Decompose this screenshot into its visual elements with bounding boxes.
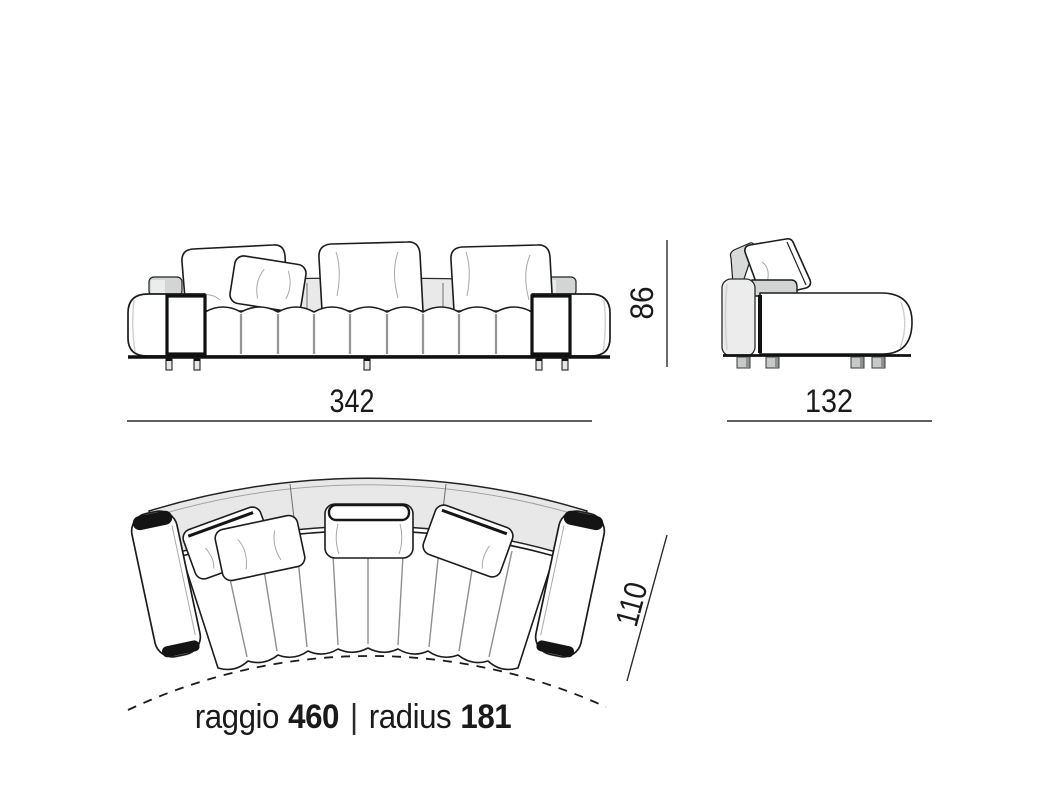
side-view	[722, 239, 912, 368]
seat-body	[760, 293, 912, 354]
legs	[737, 357, 885, 368]
side-depth-label: 132	[805, 383, 853, 419]
seat-channels	[205, 307, 532, 356]
radius-value: 181	[460, 698, 511, 736]
back-panel	[722, 279, 755, 356]
radius-label: radius	[369, 698, 451, 736]
radius-caption: raggio460|radius181	[190, 698, 516, 737]
back-cushions	[182, 242, 553, 313]
left-arm	[128, 294, 205, 356]
front-width-label: 342	[330, 383, 375, 419]
caption-separator: |	[350, 698, 358, 736]
legs	[166, 358, 568, 370]
top-depth-label: 110	[608, 578, 654, 630]
height-dimension: 86	[624, 240, 667, 367]
top-view	[128, 478, 608, 710]
throw-pillow	[229, 255, 308, 314]
top-depth-dimension: 110	[608, 535, 667, 681]
technical-drawing: 342 132 86 110	[0, 0, 1051, 796]
height-label: 86	[624, 287, 660, 320]
raggio-label: raggio	[195, 698, 279, 736]
front-width-dimension: 342	[127, 383, 592, 421]
middle-cushion	[325, 504, 413, 558]
front-view	[128, 242, 610, 370]
raggio-value: 460	[288, 698, 339, 736]
middle-cushion	[319, 242, 423, 311]
side-depth-dimension: 132	[727, 383, 932, 421]
right-arm	[532, 294, 610, 356]
